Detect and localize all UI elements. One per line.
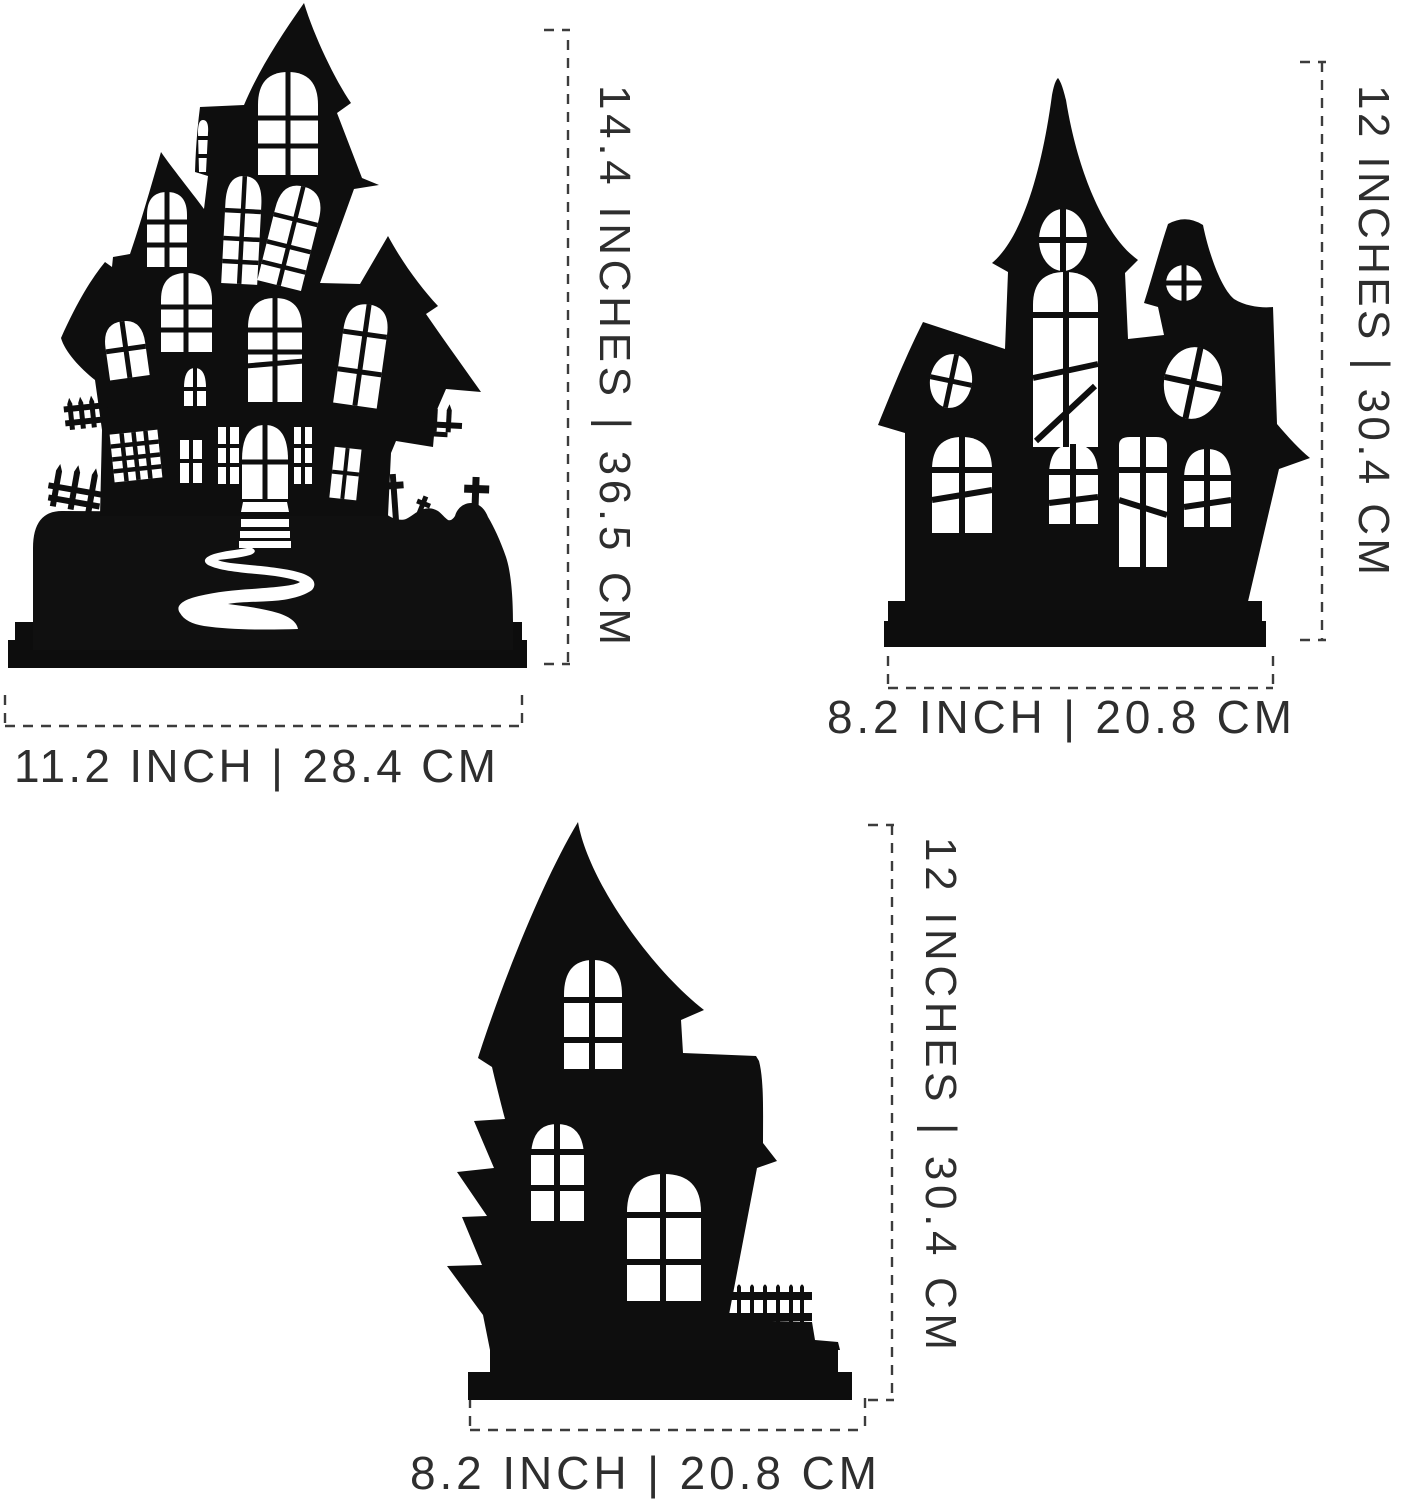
svg-text:12 INCHES | 30.4 CM: 12 INCHES | 30.4 CM bbox=[1349, 85, 1398, 575]
svg-text:14.4 INCHES | 36.5 CM: 14.4 INCHES | 36.5 CM bbox=[590, 85, 639, 645]
svg-text:12 INCHES | 30.4 CM: 12 INCHES | 30.4 CM bbox=[916, 837, 965, 1350]
svg-text:8.2 INCH | 20.8 CM: 8.2 INCH | 20.8 CM bbox=[827, 691, 1292, 743]
svg-text:11.2 INCH | 28.4 CM: 11.2 INCH | 28.4 CM bbox=[14, 740, 496, 792]
svg-text:8.2 INCH | 20.8 CM: 8.2 INCH | 20.8 CM bbox=[410, 1447, 877, 1499]
